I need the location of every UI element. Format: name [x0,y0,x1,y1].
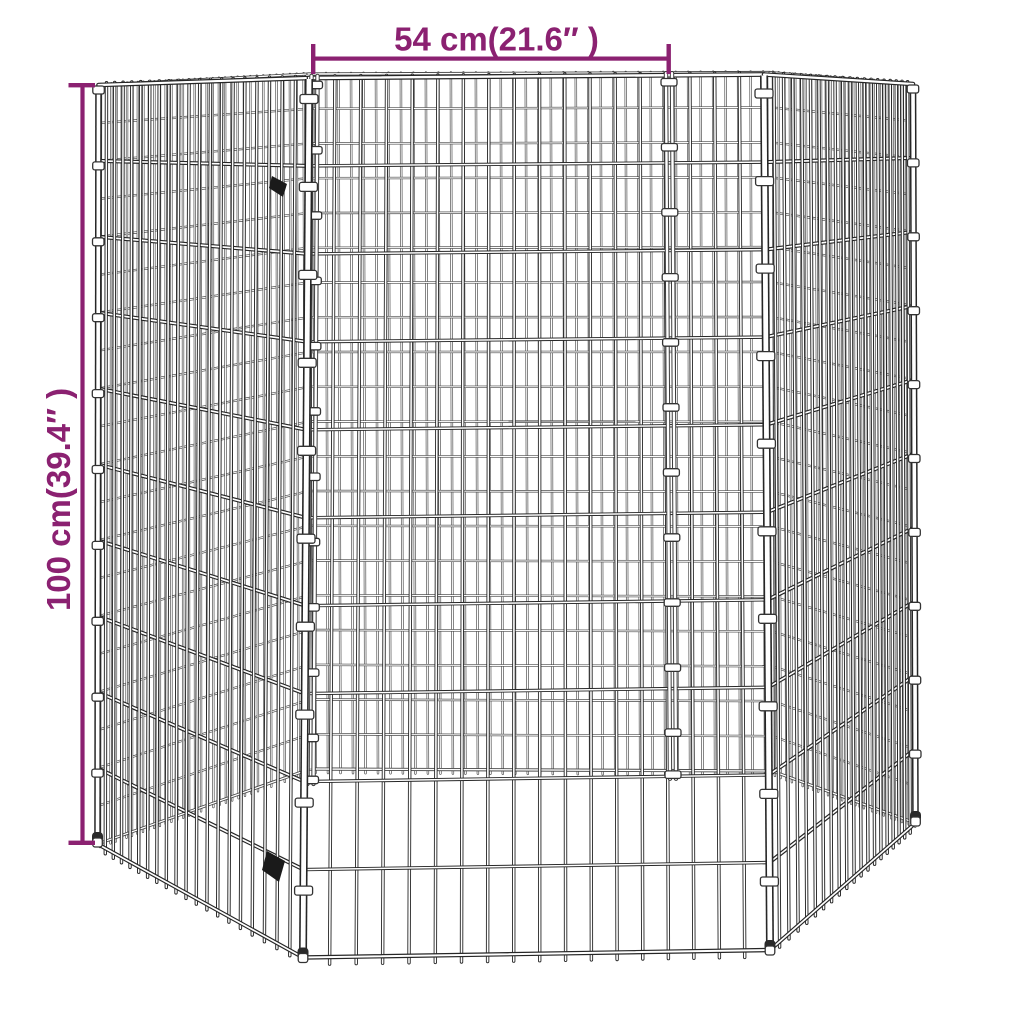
svg-text:100 cm(39.4″ ): 100 cm(39.4″ ) [40,388,77,611]
svg-text:54 cm(21.6″ ): 54 cm(21.6″ ) [394,21,599,58]
